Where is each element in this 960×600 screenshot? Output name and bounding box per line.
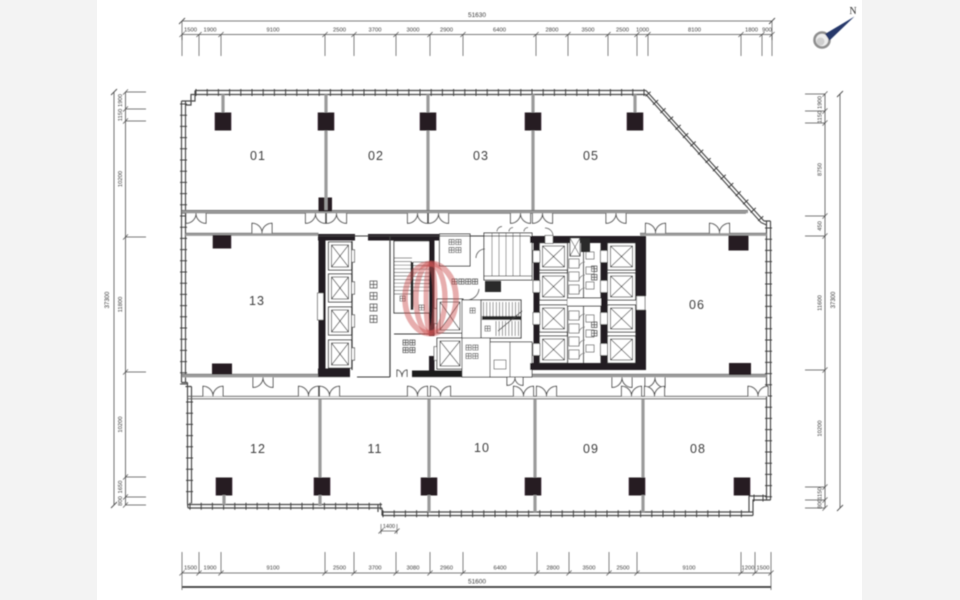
svg-text:11: 11	[368, 442, 383, 456]
svg-text:13: 13	[249, 294, 265, 308]
svg-text:1650: 1650	[118, 481, 124, 494]
svg-text:10200: 10200	[818, 420, 824, 436]
svg-text:1900: 1900	[818, 96, 824, 109]
svg-text:9100: 9100	[683, 566, 696, 572]
svg-text:10: 10	[474, 441, 490, 455]
svg-text:12: 12	[250, 442, 266, 456]
svg-text:450: 450	[818, 221, 824, 231]
svg-text:2500: 2500	[333, 28, 346, 34]
svg-text:3500: 3500	[583, 566, 596, 572]
svg-text:3700: 3700	[369, 28, 382, 34]
svg-text:01: 01	[250, 149, 266, 163]
svg-text:1900: 1900	[118, 94, 124, 107]
svg-text:1500: 1500	[757, 566, 770, 572]
svg-text:06: 06	[689, 298, 705, 312]
svg-text:1150: 1150	[818, 487, 824, 499]
svg-text:6400: 6400	[493, 28, 506, 34]
svg-text:1400: 1400	[383, 524, 395, 530]
svg-text:51630: 51630	[468, 12, 486, 19]
svg-text:1900: 1900	[204, 566, 217, 572]
svg-text:37300: 37300	[831, 291, 837, 308]
svg-text:800: 800	[818, 499, 824, 509]
svg-text:08: 08	[690, 442, 706, 456]
svg-text:900: 900	[762, 28, 772, 34]
svg-text:N: N	[849, 6, 856, 17]
svg-text:1200: 1200	[742, 566, 755, 572]
svg-text:3080: 3080	[407, 566, 420, 572]
svg-text:3500: 3500	[582, 28, 595, 34]
svg-text:1150: 1150	[118, 109, 124, 121]
svg-text:2500: 2500	[616, 28, 629, 34]
svg-text:51600: 51600	[468, 579, 486, 586]
svg-text:1900: 1900	[204, 28, 217, 34]
svg-text:37300: 37300	[105, 291, 111, 308]
svg-text:8100: 8100	[688, 28, 701, 34]
svg-text:11800: 11800	[118, 297, 124, 313]
svg-text:1000: 1000	[636, 28, 649, 34]
svg-text:800: 800	[118, 496, 124, 506]
svg-text:11600: 11600	[818, 295, 824, 311]
svg-text:02: 02	[368, 149, 384, 163]
svg-text:3000: 3000	[407, 28, 420, 34]
svg-text:2800: 2800	[546, 28, 559, 34]
svg-text:2800: 2800	[547, 566, 560, 572]
svg-text:10200: 10200	[118, 171, 124, 187]
svg-text:6400: 6400	[494, 566, 507, 572]
svg-text:1150: 1150	[818, 111, 824, 123]
svg-text:1800: 1800	[745, 28, 758, 34]
svg-text:1500: 1500	[184, 566, 197, 572]
svg-text:2900: 2900	[440, 28, 453, 34]
svg-text:03: 03	[473, 149, 489, 163]
svg-text:10200: 10200	[118, 416, 124, 432]
svg-text:9100: 9100	[267, 566, 280, 572]
svg-text:3700: 3700	[369, 566, 382, 572]
svg-text:09: 09	[583, 442, 599, 456]
svg-text:2960: 2960	[440, 566, 453, 572]
svg-text:2500: 2500	[617, 566, 630, 572]
svg-text:05: 05	[583, 149, 599, 163]
svg-text:1500: 1500	[184, 28, 197, 34]
svg-text:9100: 9100	[267, 28, 280, 34]
svg-text:2500: 2500	[333, 566, 346, 572]
svg-text:8750: 8750	[818, 163, 824, 176]
